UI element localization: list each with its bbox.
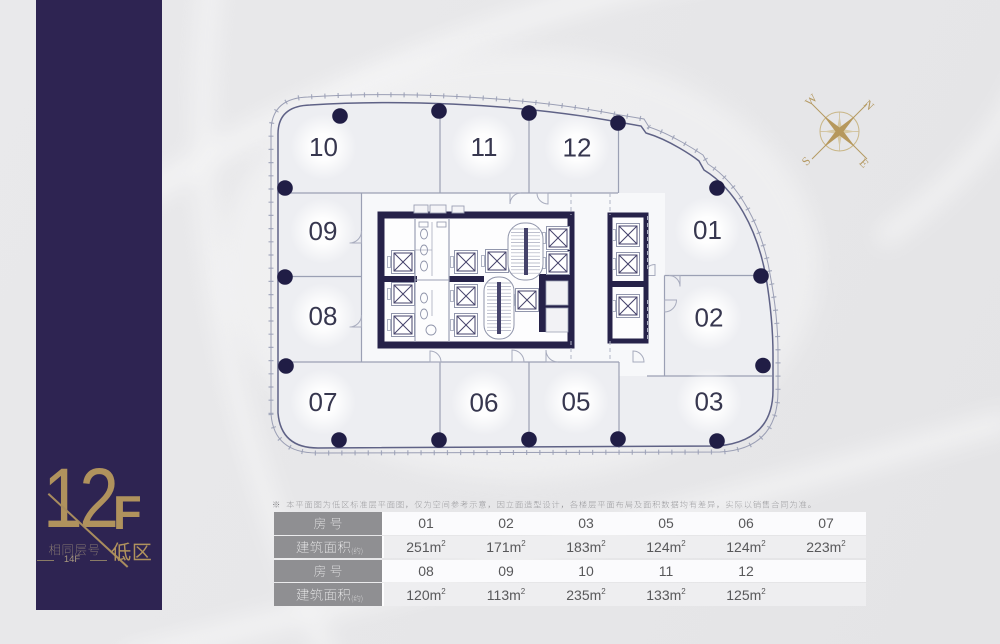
svg-text:09: 09 [309,216,338,246]
svg-text:10: 10 [309,132,338,162]
svg-text:05: 05 [562,387,591,417]
svg-text:E: E [856,155,871,170]
svg-text:02: 02 [695,303,724,333]
svg-text:S: S [799,154,814,169]
svg-text:06: 06 [470,388,499,418]
svg-text:N: N [861,97,877,113]
svg-text:11: 11 [471,132,498,162]
svg-text:01: 01 [693,215,722,245]
svg-text:12: 12 [563,133,592,163]
svg-text:03: 03 [695,387,724,417]
svg-text:07: 07 [309,387,338,417]
svg-text:W: W [802,91,820,109]
svg-text:08: 08 [309,301,338,331]
